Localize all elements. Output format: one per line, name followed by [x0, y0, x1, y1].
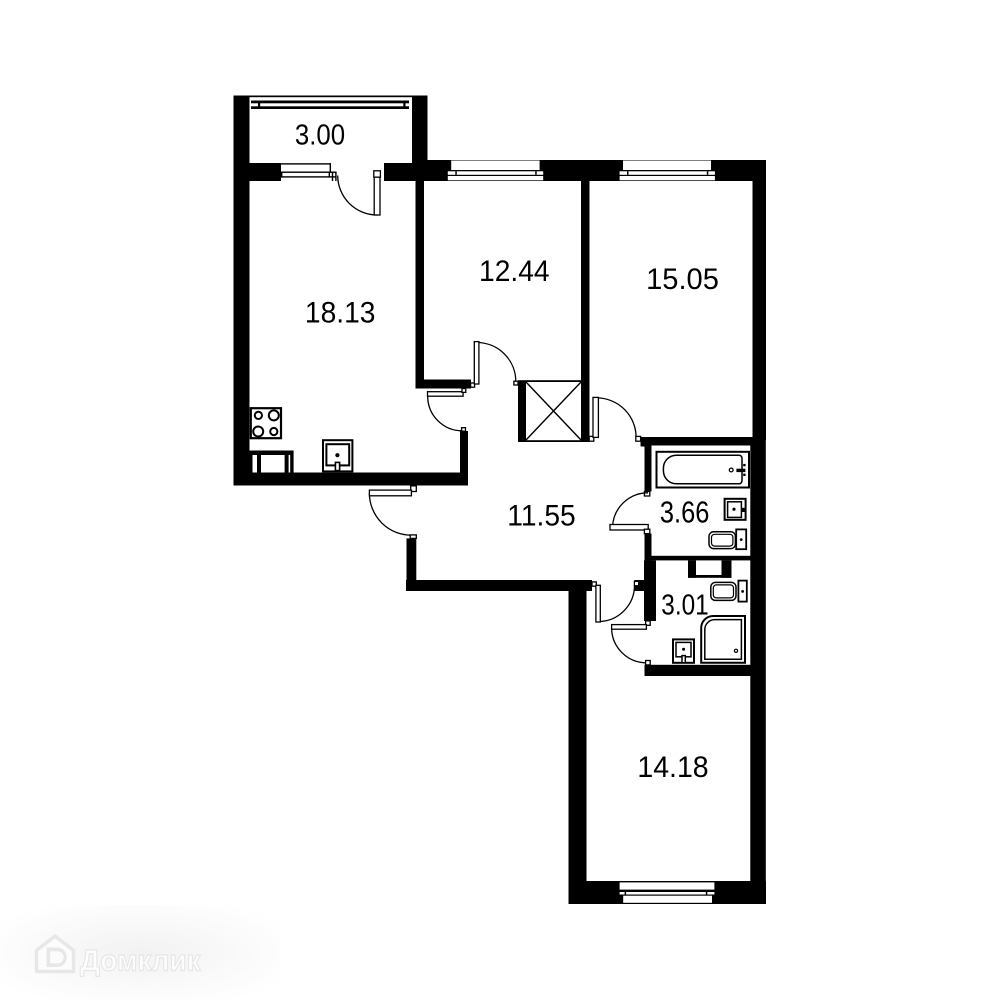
svg-text:18.13: 18.13: [305, 297, 376, 330]
svg-text:3.01: 3.01: [661, 589, 708, 621]
svg-text:14.18: 14.18: [637, 752, 708, 785]
svg-text:11.55: 11.55: [507, 500, 575, 533]
svg-text:12.44: 12.44: [479, 255, 550, 288]
svg-text:Домклик: Домклик: [80, 945, 201, 978]
svg-text:15.05: 15.05: [646, 263, 719, 296]
svg-text:3.66: 3.66: [660, 495, 709, 530]
svg-text:3.00: 3.00: [295, 118, 345, 151]
